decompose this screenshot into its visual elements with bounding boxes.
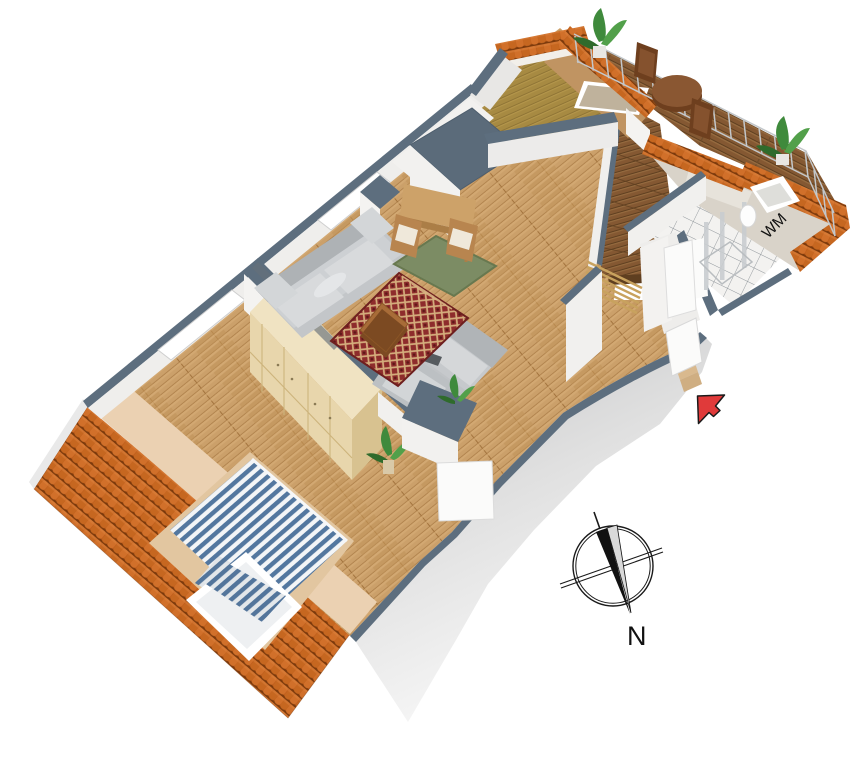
svg-text:N: N: [627, 621, 647, 651]
